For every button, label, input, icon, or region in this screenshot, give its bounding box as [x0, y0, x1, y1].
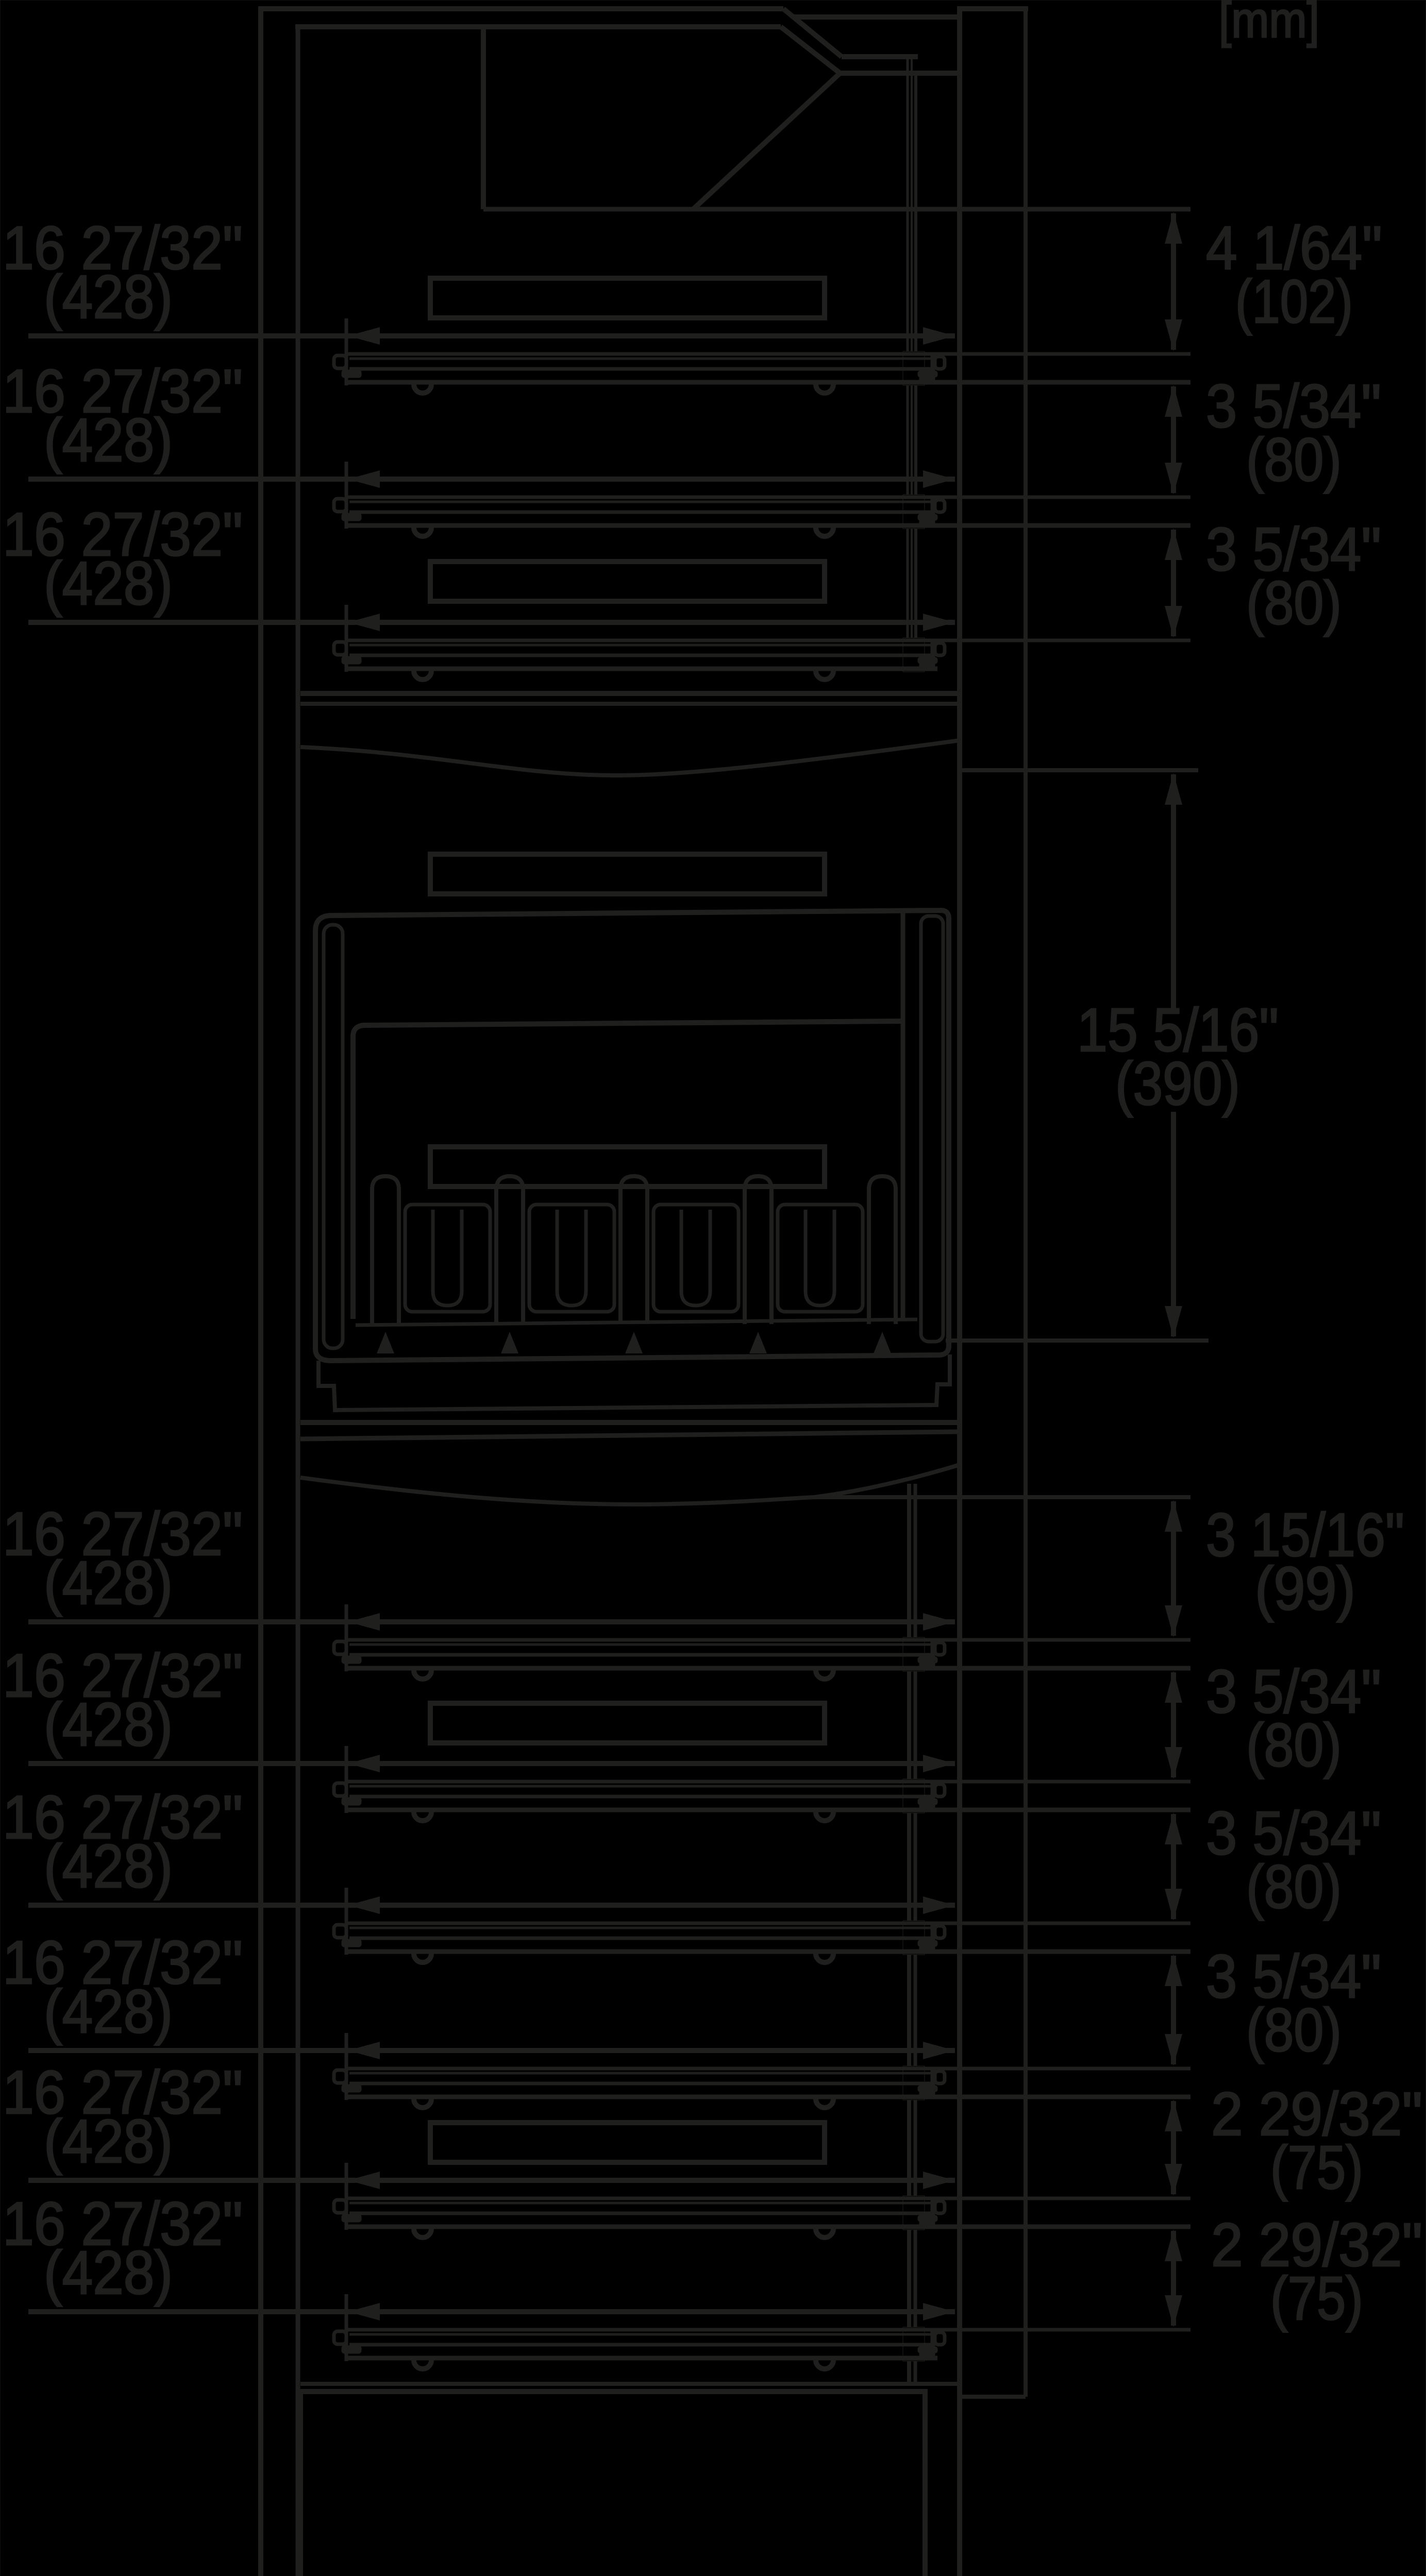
svg-text:(80): (80): [1246, 569, 1341, 637]
svg-text:(80): (80): [1246, 1711, 1341, 1780]
svg-text:(428): (428): [44, 1977, 173, 2046]
svg-text:(99): (99): [1255, 1554, 1355, 1623]
svg-text:(390): (390): [1115, 1049, 1240, 1118]
svg-text:(102): (102): [1235, 267, 1353, 336]
svg-text:(428): (428): [44, 1549, 173, 1617]
svg-text:(75): (75): [1270, 2264, 1363, 2333]
svg-text:(80): (80): [1246, 1996, 1341, 2064]
svg-text:(428): (428): [44, 1832, 173, 1901]
svg-text:(80): (80): [1246, 1853, 1341, 1921]
svg-text:(428): (428): [44, 263, 173, 331]
svg-text:(80): (80): [1246, 426, 1341, 494]
svg-text:[mm]: [mm]: [1219, 0, 1319, 48]
svg-text:(428): (428): [44, 1690, 173, 1759]
svg-text:(428): (428): [44, 549, 173, 618]
svg-text:(428): (428): [44, 2107, 173, 2176]
svg-text:(428): (428): [44, 2239, 173, 2307]
svg-text:(428): (428): [44, 406, 173, 474]
svg-text:(75): (75): [1270, 2133, 1363, 2202]
